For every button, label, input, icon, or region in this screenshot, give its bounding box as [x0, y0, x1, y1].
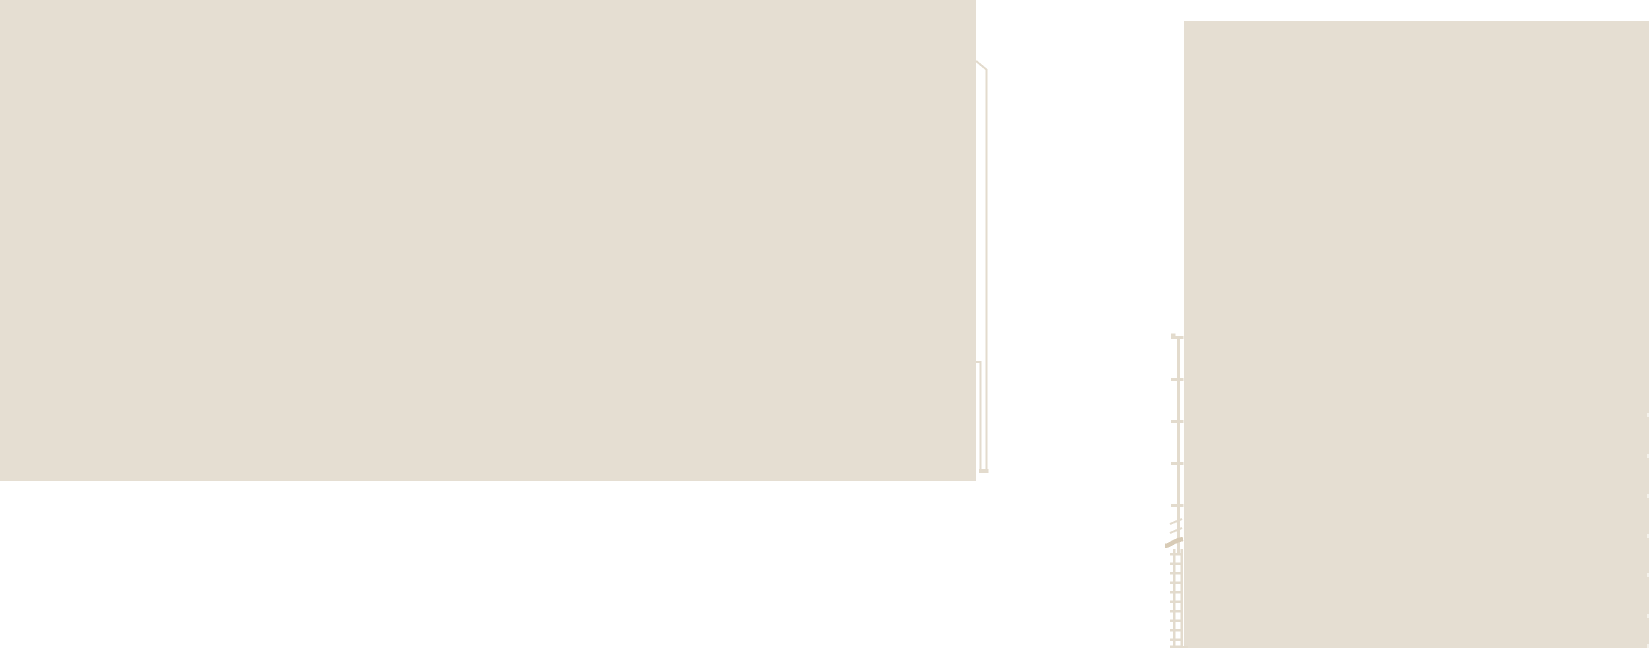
downspout-inner-line — [980, 361, 982, 473]
ladder-rung — [1170, 620, 1183, 623]
standpipe-bracket-tick — [1171, 462, 1184, 465]
ladder-rung — [1170, 591, 1183, 594]
standpipe — [1165, 334, 1184, 554]
downspout-shoe — [979, 469, 989, 473]
elevation-linework — [0, 0, 1649, 648]
ladder-rung — [1170, 639, 1183, 642]
ladder-rung — [1170, 553, 1183, 556]
standpipe-bracket-tick — [1171, 378, 1184, 381]
pipe-diagonal-tick-upper — [1170, 519, 1182, 524]
downspout-outer-line — [986, 69, 988, 473]
standpipe-bracket-tick — [1171, 504, 1184, 507]
downspout-diagonal — [976, 61, 987, 70]
left-building-mass — [0, 0, 976, 481]
ladder-rung — [1170, 572, 1183, 575]
standpipe-bracket-tick — [1171, 336, 1184, 339]
ladder-rung — [1170, 601, 1183, 604]
ladder-rung — [1170, 610, 1183, 613]
ladder-rung — [1170, 563, 1183, 566]
standpipe-bracket-tick — [1171, 420, 1184, 423]
break-line-mark — [1165, 539, 1183, 546]
pipe-diagonal-tick-lower — [1170, 528, 1182, 533]
downspout — [976, 61, 989, 473]
ladder-rung — [1170, 629, 1183, 632]
ladder-rung — [1170, 582, 1183, 585]
right-building-mass — [1184, 21, 1649, 648]
elevation-drawing — [0, 0, 1649, 648]
